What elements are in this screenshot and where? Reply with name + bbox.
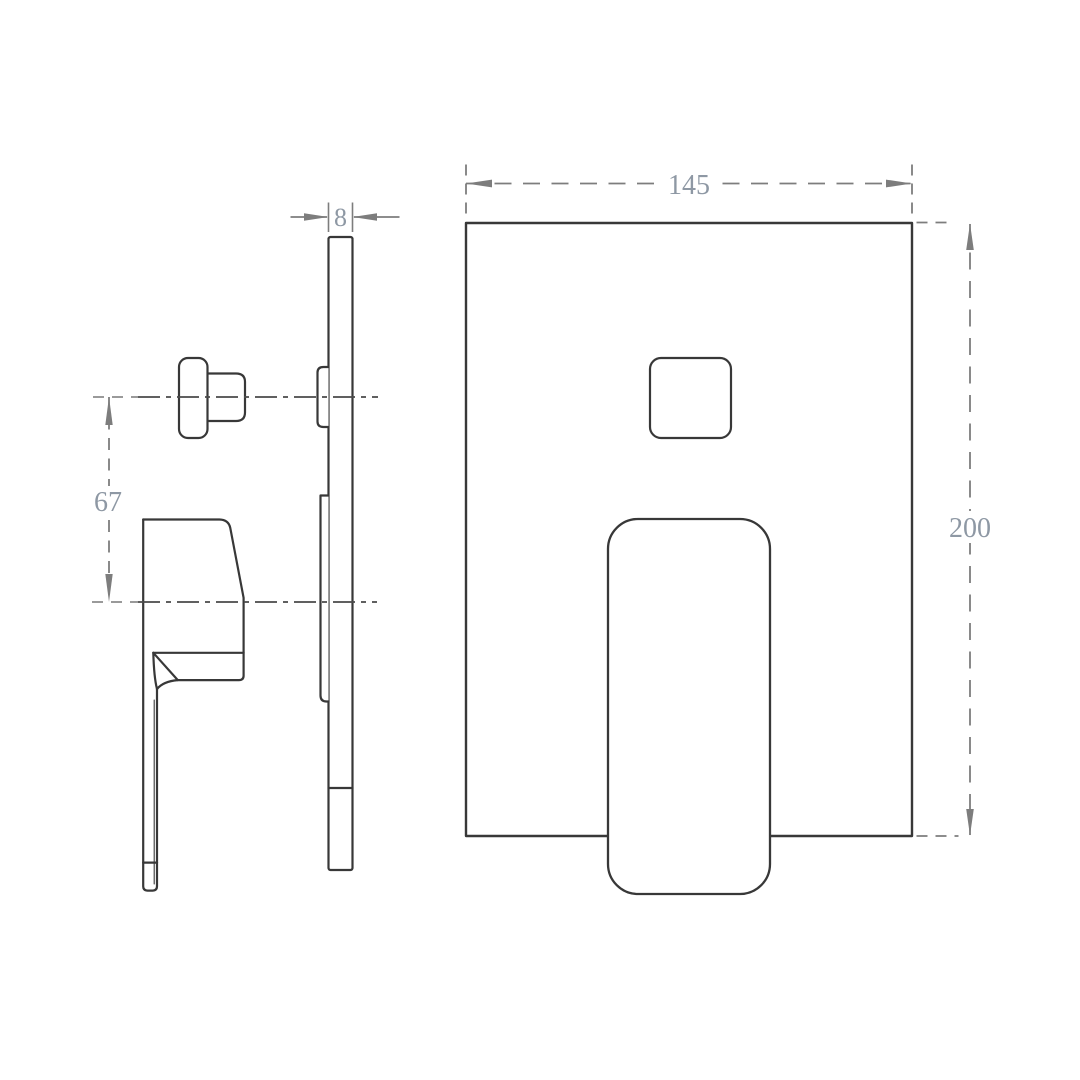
dimension-label-plate-width: 145 <box>668 170 710 201</box>
front-view <box>466 223 912 894</box>
side-plate-section <box>329 237 353 870</box>
front-diverter-button <box>650 358 731 438</box>
dimension-plate-height: 200 <box>917 223 997 837</box>
arrowhead-left-icon <box>466 180 492 188</box>
handle-curl-curve <box>153 653 157 689</box>
diverter-knob-cap <box>179 358 208 438</box>
side-lower-tab <box>321 496 329 702</box>
dimension-offset-67: 67 <box>90 397 127 602</box>
front-handle <box>608 519 770 894</box>
arrowhead-left-icon <box>353 213 378 220</box>
dimension-label-plate-thickness: 8 <box>334 203 347 232</box>
dimension-plate-thickness: 8 <box>291 202 400 232</box>
arrowhead-right-icon <box>304 213 329 220</box>
arrowhead-down-icon <box>966 809 974 836</box>
handle-body-outline <box>143 520 243 690</box>
arrowhead-up-icon <box>105 397 112 425</box>
dimension-label-plate-height: 200 <box>949 513 991 544</box>
technical-drawing-page: 8 67 145 <box>0 0 1080 1080</box>
technical-drawing-canvas: 8 67 145 <box>0 0 1080 1080</box>
arrowhead-down-icon <box>105 574 112 602</box>
dimension-plate-width: 145 <box>466 165 912 218</box>
dimension-label-offset: 67 <box>94 487 122 518</box>
arrowhead-right-icon <box>886 180 912 188</box>
arrowhead-up-icon <box>966 224 974 251</box>
handle-curl-diagonal <box>153 653 178 680</box>
side-view <box>143 237 352 891</box>
handle-outer-edge <box>143 520 157 891</box>
